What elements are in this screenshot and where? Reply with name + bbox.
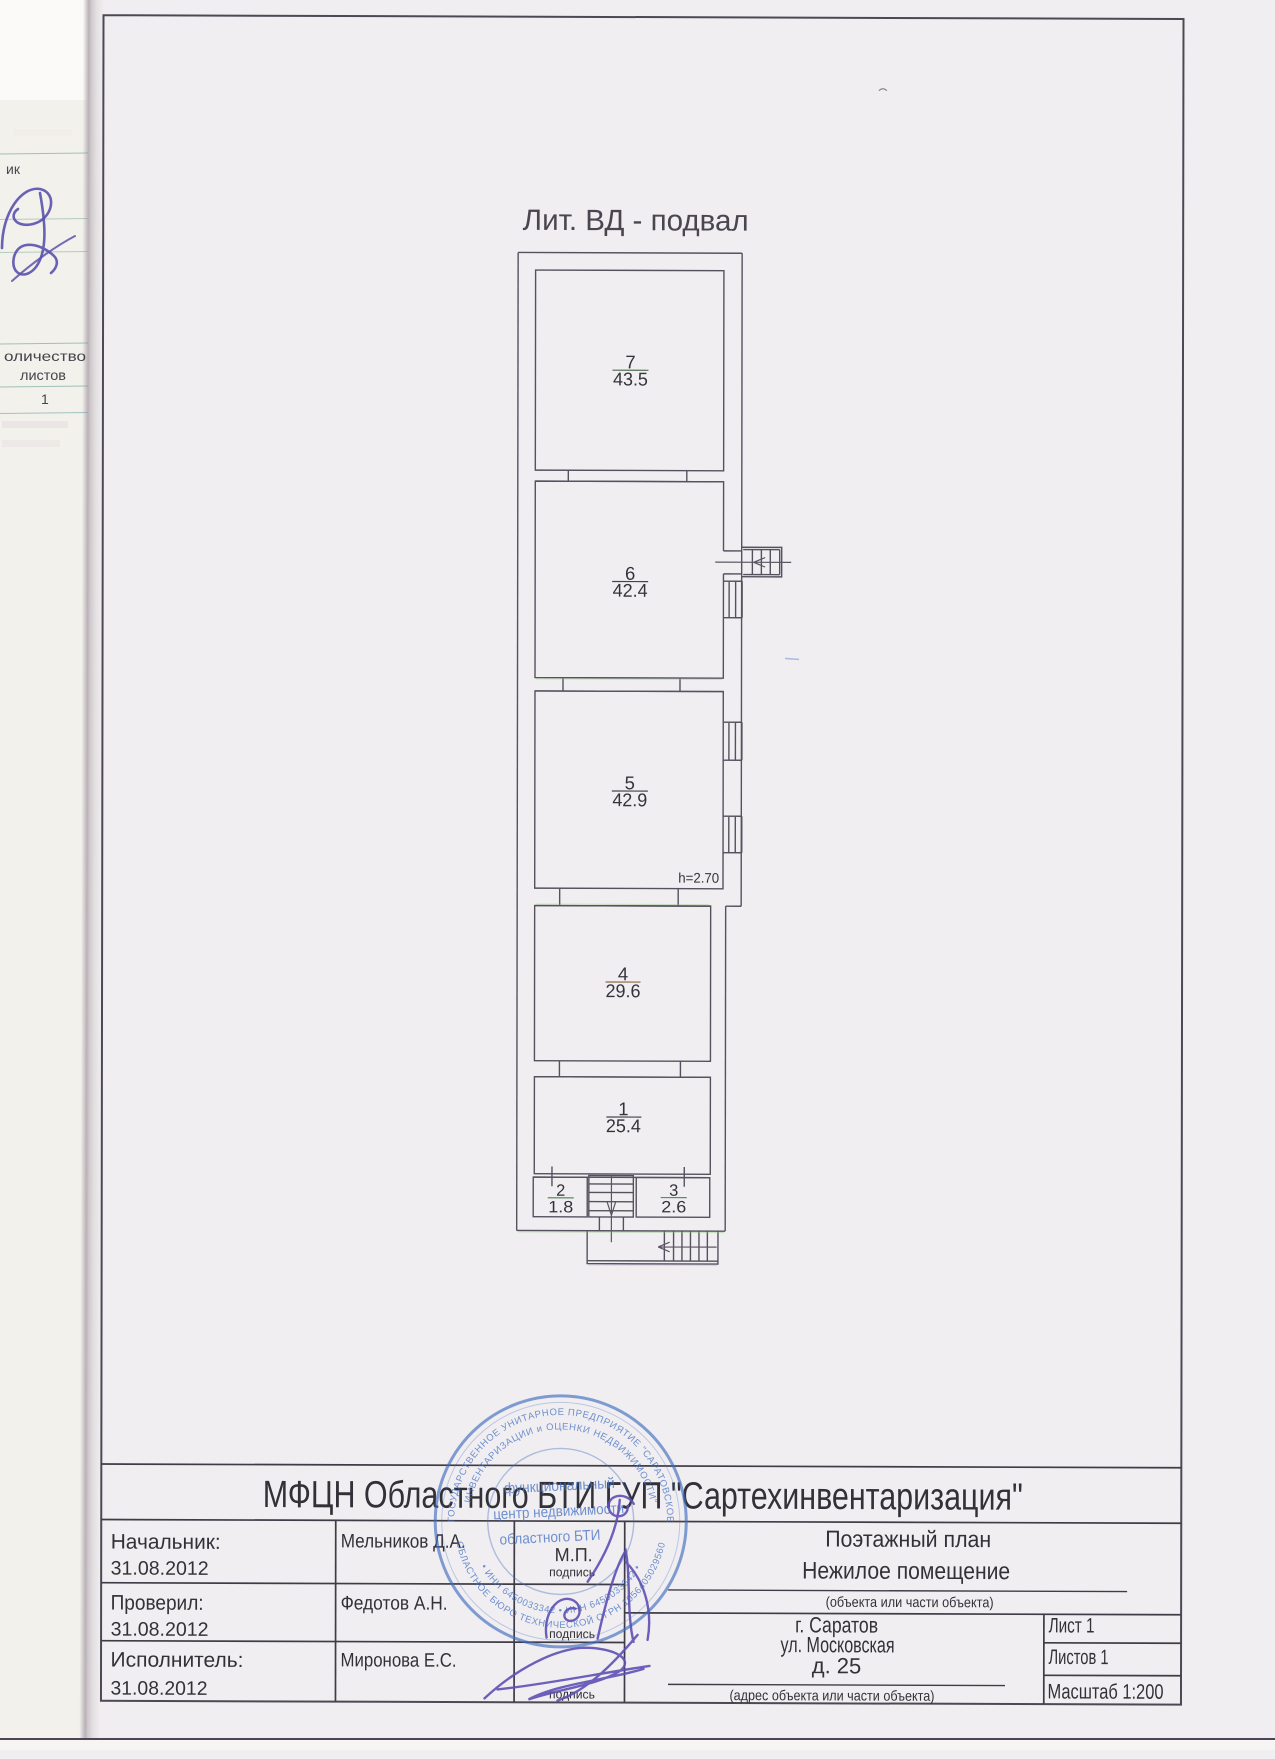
svg-text:Начальник:: Начальник: (111, 1531, 221, 1554)
svg-text:Миронова Е.С.: Миронова Е.С. (341, 1649, 457, 1671)
svg-text:31.08.2012: 31.08.2012 (111, 1558, 209, 1580)
svg-text:Поэтажный план: Поэтажный план (825, 1526, 991, 1553)
svg-text:31.08.2012: 31.08.2012 (111, 1619, 209, 1641)
svg-text:Лит. ВД - подвал: Лит. ВД - подвал (523, 204, 749, 238)
svg-text:2: 2 (556, 1182, 565, 1200)
svg-text:(адрес объекта или части объек: (адрес объекта или части объекта) (729, 1688, 934, 1705)
svg-text:Листов 1: Листов 1 (1049, 1646, 1109, 1669)
svg-text:подпись: подпись (549, 1565, 595, 1579)
svg-text:h=2.70: h=2.70 (678, 870, 719, 886)
svg-text:42.9: 42.9 (612, 789, 647, 810)
svg-text:31.08.2012: 31.08.2012 (110, 1678, 207, 1700)
svg-text:43.5: 43.5 (613, 368, 648, 389)
svg-text:(объекта или части объекта): (объекта или части объекта) (826, 1595, 994, 1612)
svg-text:Мельников Д.А.: Мельников Д.А. (341, 1530, 466, 1552)
svg-text:25.4: 25.4 (606, 1115, 641, 1136)
svg-text:Масштаб 1:200: Масштаб 1:200 (1047, 1680, 1163, 1703)
svg-text:Лист 1: Лист 1 (1049, 1614, 1095, 1637)
svg-text:42.4: 42.4 (613, 580, 648, 601)
svg-text:Нежилое помещение: Нежилое помещение (802, 1557, 1010, 1585)
svg-text:2.6: 2.6 (661, 1198, 686, 1216)
svg-text:Проверил:: Проверил: (111, 1592, 204, 1615)
svg-text:М.П.: М.П. (555, 1545, 593, 1566)
svg-text:1.8: 1.8 (548, 1198, 573, 1216)
svg-text:29.6: 29.6 (606, 980, 641, 1001)
svg-text:д. 25: д. 25 (812, 1653, 862, 1678)
svg-text:Исполнитель:: Исполнитель: (111, 1649, 244, 1672)
svg-text:Федотов А.Н.: Федотов А.Н. (341, 1592, 448, 1614)
